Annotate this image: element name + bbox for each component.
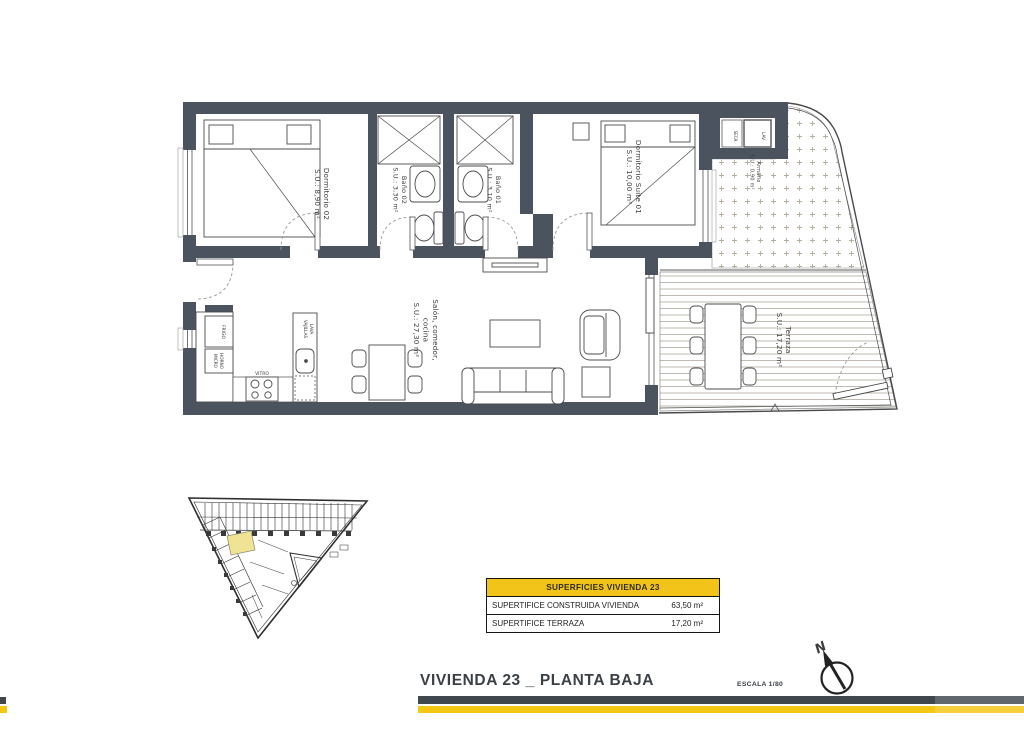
- label-bano01: Baño 01: [494, 176, 502, 204]
- label-frigo: FRIGO: [220, 325, 226, 340]
- site-plan: [175, 478, 380, 648]
- window-dormitorio02: [183, 150, 196, 235]
- table-row: SUPERTIFICE TERRAZA 17,20 m²: [487, 615, 719, 632]
- toilet-icon: [455, 212, 485, 244]
- door-entry: [196, 259, 233, 299]
- label-armario: Armario: [755, 161, 761, 182]
- dining-set: [352, 345, 422, 400]
- label-salon-2: cocina: [422, 318, 431, 342]
- label-bano02: Baño 02: [400, 176, 408, 204]
- label-salon-1: Salón, comedor,: [431, 299, 440, 360]
- label-bano02-area: S.U.: 3,30 m²: [392, 167, 400, 213]
- sink-icon: [458, 166, 488, 202]
- terrace-dining-set: [690, 304, 756, 389]
- label-salon-area: S.U.: 27,30 m²: [412, 303, 421, 358]
- door-bano01: [483, 217, 518, 250]
- site-units-top: [205, 503, 352, 530]
- fridge: [205, 316, 233, 347]
- label-dormitorio02-area: S.U.: 8,90 m²: [313, 169, 322, 219]
- living-room: [352, 258, 620, 404]
- scale-label: ESCALA 1/80: [737, 681, 783, 688]
- footer-bar-dark: [418, 696, 935, 704]
- surfaces-table: SUPERFICIES VIVIENDA 23 SUPERTIFICE CONS…: [486, 578, 720, 633]
- label-seca: SECA: [733, 131, 738, 142]
- page-title: VIVIENDA 23 _ PLANTA BAJA: [420, 672, 654, 690]
- label-suite01: Dormitorio Suite 01: [634, 140, 643, 214]
- sofa: [462, 368, 564, 404]
- cooktop: [246, 377, 278, 401]
- label-armario-area: S.U.: 0,90 m²: [749, 154, 755, 189]
- row-label: SUPERTIFICE TERRAZA: [487, 619, 584, 628]
- door-bano02: [380, 217, 415, 250]
- armchair: [580, 310, 620, 360]
- row-value: 17,20 m²: [671, 615, 703, 632]
- footer-bar-yellow: [418, 706, 935, 713]
- door-suite: [553, 213, 592, 250]
- coffee-table: [490, 320, 540, 347]
- label-horno-2: MICRO: [213, 354, 218, 369]
- sink-icon: [410, 166, 440, 202]
- label-dormitorio02: Dormitorio 02: [322, 168, 331, 220]
- site-detail-lines: [250, 540, 348, 618]
- footer-bar-yellow-light: [935, 706, 1024, 713]
- label-suite01-area: S.U.: 10,00 m²: [625, 150, 634, 205]
- plan-sheet: Dormitorio 02 S.U.: 8,90 m² Baño 02 S.U.…: [0, 0, 1024, 732]
- footer-bar-dark-light: [935, 696, 1024, 704]
- footer-bar-fragment-yellow: [0, 706, 7, 713]
- label-lavavajillas-1: LAVA: [309, 324, 314, 335]
- label-terraza: Terraza: [784, 325, 793, 353]
- label-terraza-area: S.U.: 17,20 m²: [775, 313, 784, 368]
- toilet-icon: [414, 212, 443, 244]
- table-row: SUPERTIFICE CONSTRUIDA VIVIENDA 63,50 m²: [487, 597, 719, 615]
- wardrobe-icon: [378, 116, 440, 164]
- north-label: N: [813, 639, 830, 657]
- row-label: SUPERTIFICE CONSTRUIDA VIVIENDA: [487, 601, 639, 610]
- entry-opening: [183, 262, 196, 302]
- wardrobe-icon: [457, 116, 513, 164]
- surfaces-table-header: SUPERFICIES VIVIENDA 23: [487, 579, 719, 597]
- terrace-table: [705, 304, 741, 389]
- label-bano01-area: S.U.: 3,10 m²: [486, 167, 494, 213]
- window-suite: [699, 170, 712, 242]
- washing-machine: [744, 120, 771, 147]
- floor-plan: Dormitorio 02 S.U.: 8,90 m² Baño 02 S.U.…: [170, 85, 910, 465]
- side-table: [582, 367, 610, 397]
- label-horno-1: HORNO: [219, 353, 224, 369]
- dryer: [722, 120, 742, 147]
- row-value: 63,50 m²: [671, 597, 703, 614]
- tv-sideboard: [483, 258, 547, 272]
- site-courtyard: [290, 553, 322, 587]
- armario: [720, 118, 775, 148]
- label-lav: LAV: [760, 132, 766, 141]
- highlighted-unit-23: [227, 531, 255, 555]
- label-lavavajillas-2: VAJILLAS: [303, 320, 308, 339]
- footer-bar-fragment-dark: [0, 697, 6, 704]
- sliding-door: [645, 275, 658, 385]
- window-kitchen: [183, 330, 196, 348]
- nightstand: [573, 123, 589, 140]
- label-vitro: VITRO: [255, 371, 269, 377]
- dormitorio-02: [204, 120, 320, 237]
